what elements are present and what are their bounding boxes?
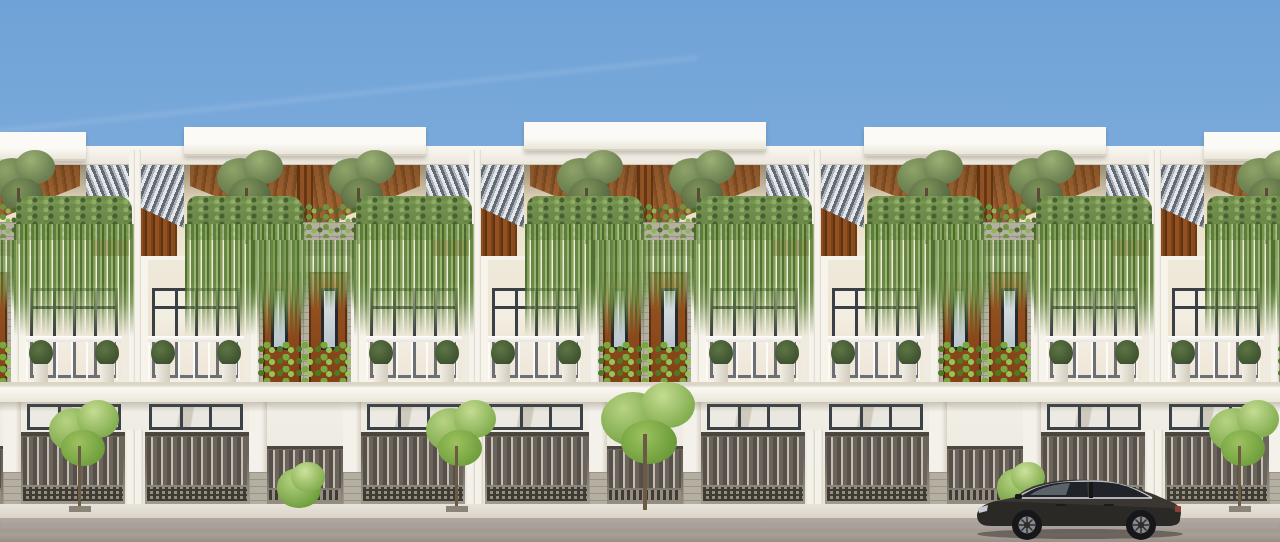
hanging-vines-door-bay: [933, 240, 1037, 310]
car-mirror: [1015, 494, 1022, 499]
street-tree: [412, 400, 502, 510]
balcony-plant-left: [830, 348, 856, 382]
stone-stub-right: [343, 472, 361, 506]
fence-slats: [487, 437, 587, 485]
plant-foliage: [1237, 340, 1261, 366]
gate-perforated-band: [0, 490, 1, 500]
plant-pot: [34, 364, 48, 382]
car: [970, 468, 1188, 542]
door-bay-fern-row: [597, 342, 693, 386]
tree-canopy: [621, 420, 677, 464]
plant-foliage: [709, 340, 733, 366]
street-tree: [1195, 400, 1280, 510]
hanging-vines-door-bay: [0, 240, 17, 310]
balcony-plant-left: [28, 348, 54, 382]
plant-foliage: [1115, 340, 1139, 366]
plant-pot: [440, 364, 454, 382]
balcony-plant-right: [556, 348, 582, 382]
plant-foliage: [95, 340, 119, 366]
plant-pot: [780, 364, 794, 382]
door-bay-fern-row: [0, 342, 13, 386]
slab-shadow: [815, 402, 1155, 412]
plant-pot: [156, 364, 170, 382]
balcony-plant-right: [434, 348, 460, 382]
car-door-handle-front: [1056, 504, 1066, 506]
plant-pot: [374, 364, 388, 382]
plant-pot: [714, 364, 728, 382]
architectural-render-scene: [0, 0, 1280, 542]
plant-foliage: [29, 340, 53, 366]
balcony-plant-left: [490, 348, 516, 382]
boundary-pier-left: [135, 150, 141, 400]
tree-base: [69, 506, 91, 512]
fence-perforated-band: [487, 487, 587, 501]
hanging-vines-right: [354, 224, 474, 336]
fence-panel-left: [145, 432, 249, 506]
fence-perforated-band: [147, 487, 247, 501]
tree-canopy: [61, 430, 105, 466]
street-shrub: [277, 462, 325, 508]
hanging-vines-door-bay: [1273, 240, 1280, 310]
plant-pot: [1176, 364, 1190, 382]
street-tree-large: [585, 382, 705, 512]
hanging-vines-right: [1034, 224, 1154, 336]
balcony-plant-right: [1236, 348, 1262, 382]
car-taillight: [1175, 506, 1181, 512]
townhouse-unit: [815, 0, 1155, 542]
gate-slats: [0, 450, 1, 488]
plant-pot: [222, 364, 236, 382]
stone-stub-left: [929, 472, 947, 506]
fence-panel-left: [825, 432, 929, 506]
fence-panel-right: [701, 432, 805, 506]
plant-foliage: [369, 340, 393, 366]
tree-base: [1229, 506, 1251, 512]
shrub-foliage: [291, 462, 325, 492]
ground-pier-boundary-left: [815, 430, 823, 508]
car-b-pillar: [1089, 482, 1093, 498]
balcony-plant-right: [216, 348, 242, 382]
tree-trunk: [455, 446, 458, 508]
tree-trunk: [643, 434, 647, 510]
hanging-vines-door-bay: [593, 240, 697, 310]
plant-foliage: [1171, 340, 1195, 366]
plant-pot: [1120, 364, 1134, 382]
boundary-pier-left: [1155, 150, 1161, 400]
hanging-vines-door-bay: [253, 240, 357, 310]
plant-pot: [1242, 364, 1256, 382]
plant-foliage: [1049, 340, 1073, 366]
ground-pier-boundary-right: [127, 430, 135, 508]
fence-slats: [703, 437, 803, 485]
fence-perforated-band: [827, 487, 927, 501]
plant-pot: [902, 364, 916, 382]
plant-foliage: [897, 340, 921, 366]
balcony-plant-left: [368, 348, 394, 382]
balcony-plant-right: [774, 348, 800, 382]
boundary-pier-left: [475, 150, 481, 400]
tree-trunk: [1238, 446, 1241, 508]
tree-canopy: [438, 430, 482, 466]
balcony-plant-left: [708, 348, 734, 382]
plant-foliage: [557, 340, 581, 366]
tree-base: [446, 506, 468, 512]
door-bay-fern-row: [257, 342, 353, 386]
door-bay-fern-row: [937, 342, 1033, 386]
boundary-pier-left: [815, 150, 821, 400]
plant-foliage: [831, 340, 855, 366]
plant-foliage: [775, 340, 799, 366]
ground-pier-boundary-left: [135, 430, 143, 508]
hanging-vines-right: [14, 224, 134, 336]
plant-foliage: [217, 340, 241, 366]
floor-slab: [0, 382, 135, 402]
balcony-plant-right: [896, 348, 922, 382]
balcony-plant-right: [94, 348, 120, 382]
hanging-vines-left: [1205, 224, 1280, 336]
fence-perforated-band: [703, 487, 803, 501]
fence-slats: [827, 437, 927, 485]
fence-slats: [147, 437, 247, 485]
ground-pier-boundary-right: [807, 430, 815, 508]
balcony-plant-left: [1048, 348, 1074, 382]
plant-pot: [496, 364, 510, 382]
balcony-plant-left: [150, 348, 176, 382]
balcony-plant-left: [1170, 348, 1196, 382]
floor-slab: [135, 382, 475, 402]
plant-pot: [836, 364, 850, 382]
floor-slab: [815, 382, 1155, 402]
street-tree: [35, 400, 125, 510]
stone-stub-left: [249, 472, 267, 506]
tree-canopy: [1221, 430, 1265, 466]
plant-pot: [1054, 364, 1068, 382]
balcony-plant-right: [1114, 348, 1140, 382]
car-door-handle-rear: [1104, 504, 1114, 506]
plant-pot: [562, 364, 576, 382]
stone-stub-right: [3, 472, 21, 506]
tree-trunk: [78, 446, 81, 508]
plant-foliage: [151, 340, 175, 366]
hanging-vines-right: [694, 224, 814, 336]
plant-foliage: [491, 340, 515, 366]
floor-slab: [1155, 382, 1280, 402]
plant-foliage: [435, 340, 459, 366]
plant-pot: [100, 364, 114, 382]
roof-fascia-high: [524, 122, 766, 151]
